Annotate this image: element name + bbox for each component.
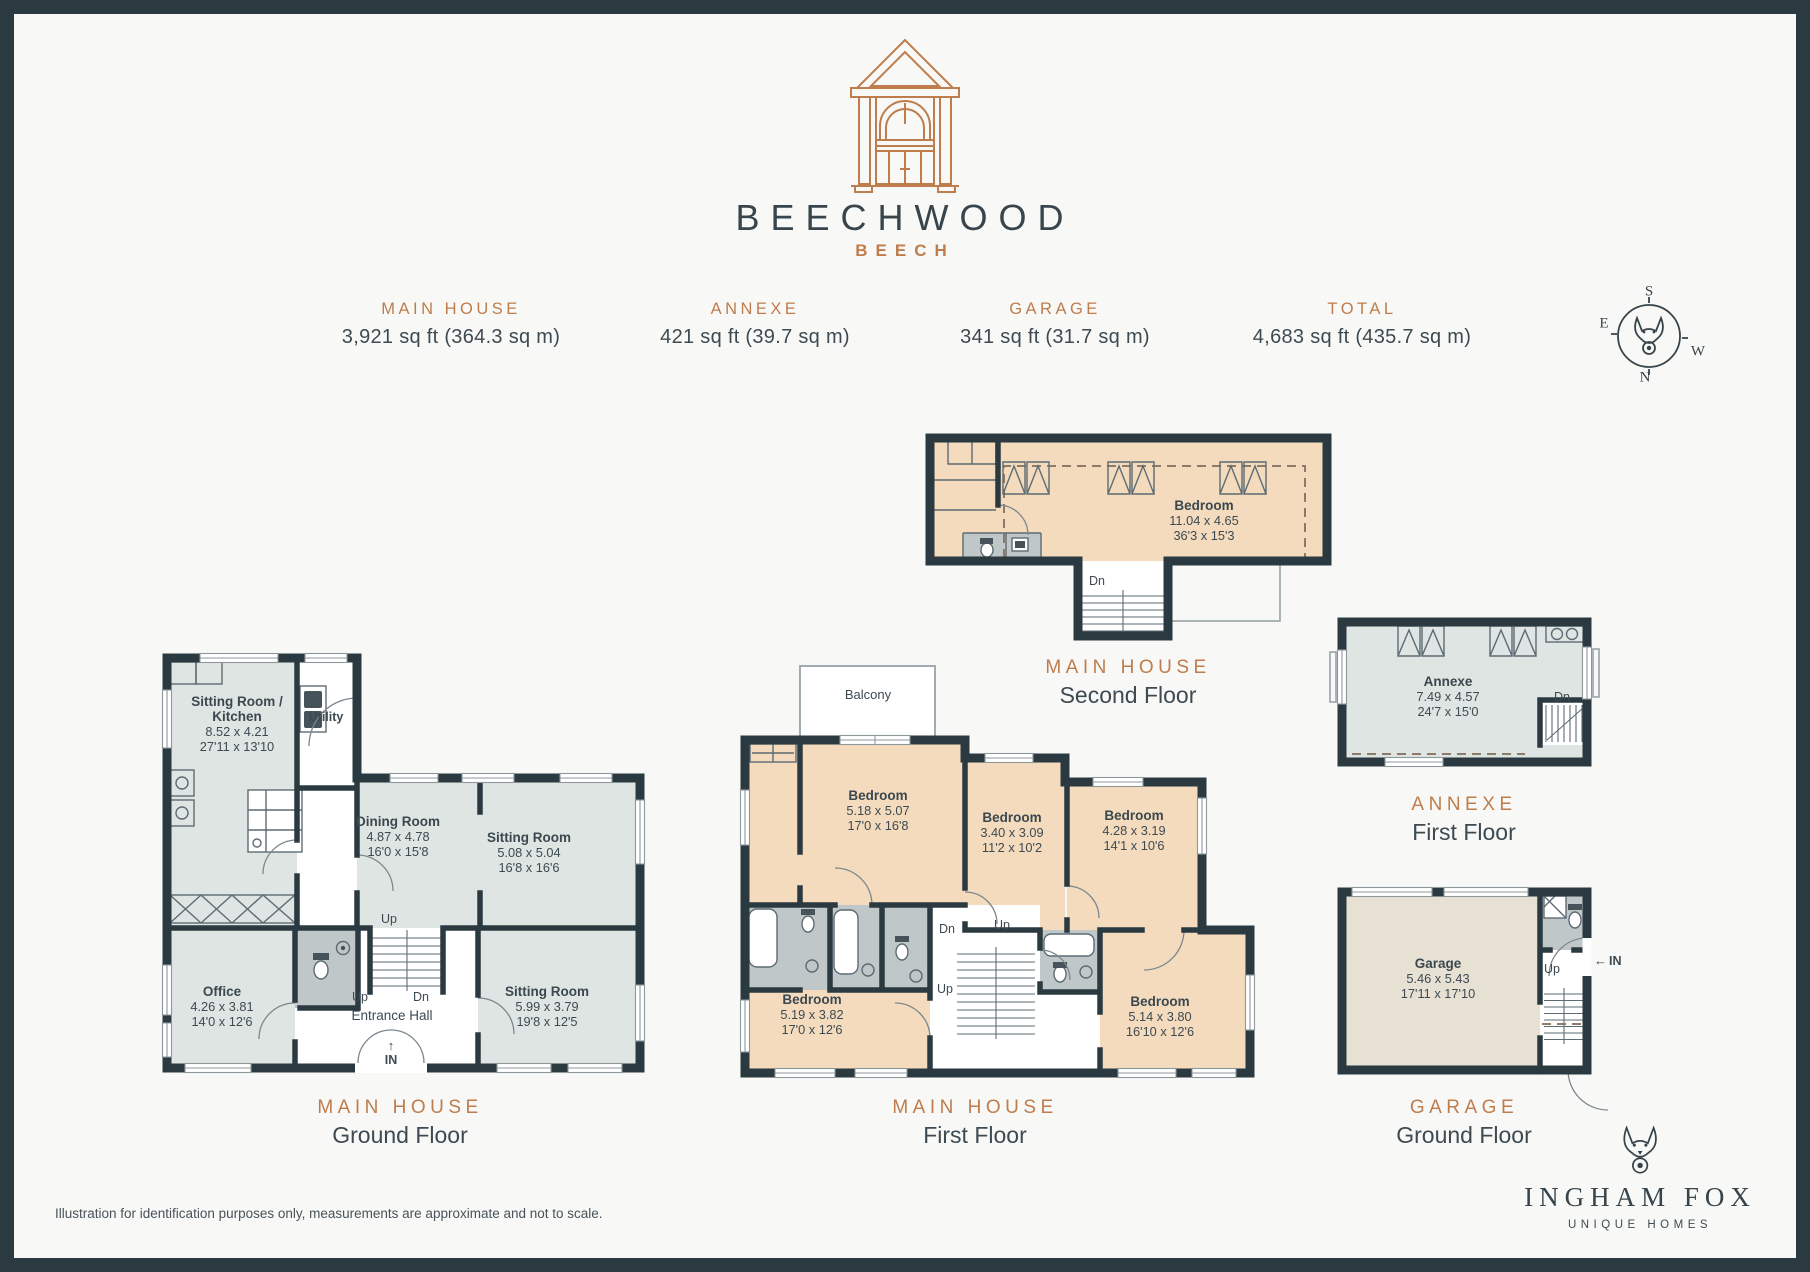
room-dim-imperial: 17'11 x 17'10 bbox=[1401, 986, 1475, 1001]
room-dim-metric: 5.46 x 5.43 bbox=[1401, 971, 1475, 986]
room-label-bedroom-second: Bedroom 11.04 x 4.65 36'3 x 15'3 bbox=[1169, 498, 1239, 543]
room-label-sitting-kitchen: Sitting Room / Kitchen 8.52 x 4.21 27'11… bbox=[191, 694, 283, 754]
floorplan-page: BEECHWOOD BEECH MAIN HOUSE 3,921 sq ft (… bbox=[0, 0, 1810, 1272]
stat-total: TOTAL 4,683 sq ft (435.7 sq m) bbox=[1253, 300, 1471, 349]
room-label-annexe: Annexe 7.49 x 4.57 24'7 x 15'0 bbox=[1416, 674, 1479, 719]
room-dim-imperial: 17'0 x 16'8 bbox=[846, 818, 909, 833]
room-dim-imperial: 19'8 x 12'5 bbox=[505, 1014, 589, 1029]
room-dim-imperial: 16'10 x 12'6 bbox=[1126, 1024, 1194, 1039]
room-label-bedroom4: Bedroom 5.19 x 3.82 17'0 x 12'6 bbox=[780, 992, 843, 1037]
stat-value: 421 sq ft (39.7 sq m) bbox=[660, 326, 850, 349]
room-name: Bedroom bbox=[1126, 994, 1194, 1009]
disclaimer-text: Illustration for identification purposes… bbox=[55, 1206, 603, 1221]
agency-logo: INGHAM FOX UNIQUE HOMES bbox=[1524, 1122, 1756, 1231]
room-dim-imperial: 17'0 x 12'6 bbox=[780, 1022, 843, 1037]
balcony-label: Balcony bbox=[845, 687, 891, 702]
room-label-dining: Dining Room 4.87 x 4.78 16'0 x 15'8 bbox=[356, 814, 440, 859]
room-label-bedroom2: Bedroom 3.40 x 3.09 11'2 x 10'2 bbox=[980, 810, 1043, 855]
room-dim-metric: 3.40 x 3.09 bbox=[980, 825, 1043, 840]
room-name: Annexe bbox=[1416, 674, 1479, 689]
room-label-bedroom5: Bedroom 5.14 x 3.80 16'10 x 12'6 bbox=[1126, 994, 1194, 1039]
room-name: Kitchen bbox=[191, 709, 283, 724]
caption-title: ANNEXE bbox=[1411, 793, 1516, 817]
room-dim-imperial: 11'2 x 10'2 bbox=[980, 840, 1043, 855]
room-name: Sitting Room bbox=[505, 984, 589, 999]
stat-label: GARAGE bbox=[960, 300, 1150, 319]
stat-value: 341 sq ft (31.7 sq m) bbox=[960, 326, 1150, 349]
room-dim-imperial: 24'7 x 15'0 bbox=[1416, 704, 1479, 719]
room-label-sitting: Sitting Room 5.08 x 5.04 16'8 x 16'6 bbox=[487, 830, 571, 875]
stairs-dn-label: Dn bbox=[413, 990, 429, 1004]
property-title: BEECHWOOD bbox=[735, 197, 1074, 239]
stat-garage: GARAGE 341 sq ft (31.7 sq m) bbox=[960, 300, 1150, 349]
room-dim-metric: 5.08 x 5.04 bbox=[487, 845, 571, 860]
room-dim-imperial: 14'0 x 12'6 bbox=[190, 1014, 253, 1029]
compass-e: E bbox=[1599, 316, 1608, 333]
caption-ground-floor: MAIN HOUSE Ground Floor bbox=[317, 1096, 482, 1150]
room-name: Sitting Room bbox=[487, 830, 571, 845]
room-label-garage: Garage 5.46 x 5.43 17'11 x 17'10 bbox=[1401, 956, 1475, 1001]
caption-first-floor: MAIN HOUSE First Floor bbox=[892, 1096, 1057, 1150]
room-dim-metric: 4.28 x 3.19 bbox=[1102, 823, 1165, 838]
caption-garage: GARAGE Ground Floor bbox=[1396, 1096, 1532, 1150]
room-dim-imperial: 27'11 x 13'10 bbox=[191, 739, 283, 754]
caption-title: MAIN HOUSE bbox=[892, 1096, 1057, 1120]
room-dim-metric: 4.26 x 3.81 bbox=[190, 999, 253, 1014]
room-dim-metric: 5.19 x 3.82 bbox=[780, 1007, 843, 1022]
stairs-dn-label: Dn bbox=[939, 922, 955, 936]
stairs-up-label: Up bbox=[994, 918, 1010, 932]
caption-title: MAIN HOUSE bbox=[317, 1096, 482, 1120]
compass-w: W bbox=[1691, 344, 1705, 361]
stat-label: TOTAL bbox=[1253, 300, 1471, 319]
compass-s: S bbox=[1645, 284, 1653, 301]
room-name: Bedroom bbox=[780, 992, 843, 1007]
caption-sub: First Floor bbox=[892, 1120, 1057, 1150]
fox-icon bbox=[1608, 1122, 1672, 1178]
entry-arrow-icon: ↑ bbox=[388, 1038, 395, 1053]
garage-plan bbox=[1325, 878, 1630, 1118]
entry-in-label: ← IN bbox=[1594, 953, 1622, 968]
room-label-office: Office 4.26 x 3.81 14'0 x 12'6 bbox=[190, 984, 253, 1029]
entry-arrow-icon: ← bbox=[1594, 953, 1607, 968]
room-dim-metric: 5.18 x 5.07 bbox=[846, 803, 909, 818]
entry-in-label: IN bbox=[385, 1053, 398, 1067]
room-name: Bedroom bbox=[1169, 498, 1239, 513]
stairs-up-label: Up bbox=[381, 912, 397, 926]
second-floor-plan bbox=[912, 425, 1347, 650]
room-dim-metric: 5.14 x 3.80 bbox=[1126, 1009, 1194, 1024]
room-label-entrance-hall: Entrance Hall bbox=[351, 1008, 432, 1023]
stat-value: 4,683 sq ft (435.7 sq m) bbox=[1253, 326, 1471, 349]
stairs-up-label: Up bbox=[352, 990, 368, 1004]
stat-label: MAIN HOUSE bbox=[342, 300, 560, 319]
room-name: Bedroom bbox=[846, 788, 909, 803]
room-name: Bedroom bbox=[1102, 808, 1165, 823]
caption-annexe: ANNEXE First Floor bbox=[1411, 793, 1516, 847]
room-label-utility: Utility bbox=[309, 710, 344, 724]
room-dim-imperial: 36'3 x 15'3 bbox=[1169, 528, 1239, 543]
stat-main-house: MAIN HOUSE 3,921 sq ft (364.3 sq m) bbox=[342, 300, 560, 349]
property-subtitle: BEECH bbox=[855, 241, 955, 261]
room-dim-metric: 11.04 x 4.65 bbox=[1169, 513, 1239, 528]
stat-annexe: ANNEXE 421 sq ft (39.7 sq m) bbox=[660, 300, 850, 349]
stairs-dn-label: Dn bbox=[1554, 690, 1570, 704]
compass-n: N bbox=[1640, 370, 1651, 387]
caption-sub: Ground Floor bbox=[1396, 1120, 1532, 1150]
caption-sub: First Floor bbox=[1411, 817, 1516, 847]
room-name: Dining Room bbox=[356, 814, 440, 829]
agency-name: INGHAM FOX bbox=[1524, 1182, 1756, 1213]
room-dim-imperial: 14'1 x 10'6 bbox=[1102, 838, 1165, 853]
room-dim-imperial: 16'0 x 15'8 bbox=[356, 844, 440, 859]
stat-value: 3,921 sq ft (364.3 sq m) bbox=[342, 326, 560, 349]
balcony-outline bbox=[800, 666, 935, 738]
caption-title: GARAGE bbox=[1396, 1096, 1532, 1120]
in-text: IN bbox=[1609, 954, 1622, 968]
room-dim-metric: 5.99 x 3.79 bbox=[505, 999, 589, 1014]
caption-sub: Ground Floor bbox=[317, 1120, 482, 1150]
agency-tagline: UNIQUE HOMES bbox=[1524, 1219, 1756, 1231]
room-label-bedroom3: Bedroom 4.28 x 3.19 14'1 x 10'6 bbox=[1102, 808, 1165, 853]
porch-icon bbox=[849, 36, 961, 194]
room-dim-metric: 8.52 x 4.21 bbox=[191, 724, 283, 739]
room-name: Office bbox=[190, 984, 253, 999]
room-name: Sitting Room / bbox=[191, 694, 283, 709]
stairs-dn-label: Dn bbox=[1089, 574, 1105, 588]
room-dim-imperial: 16'8 x 16'6 bbox=[487, 860, 571, 875]
room-dim-metric: 4.87 x 4.78 bbox=[356, 829, 440, 844]
room-dim-metric: 7.49 x 4.57 bbox=[1416, 689, 1479, 704]
stairs-up-label: Up bbox=[1544, 962, 1560, 976]
room-name: Garage bbox=[1401, 956, 1475, 971]
room-name: Bedroom bbox=[980, 810, 1043, 825]
room-label-sitting2: Sitting Room 5.99 x 3.79 19'8 x 12'5 bbox=[505, 984, 589, 1029]
stairs-up-label: Up bbox=[937, 982, 953, 996]
stat-label: ANNEXE bbox=[660, 300, 850, 319]
room-label-bedroom1: Bedroom 5.18 x 5.07 17'0 x 16'8 bbox=[846, 788, 909, 833]
